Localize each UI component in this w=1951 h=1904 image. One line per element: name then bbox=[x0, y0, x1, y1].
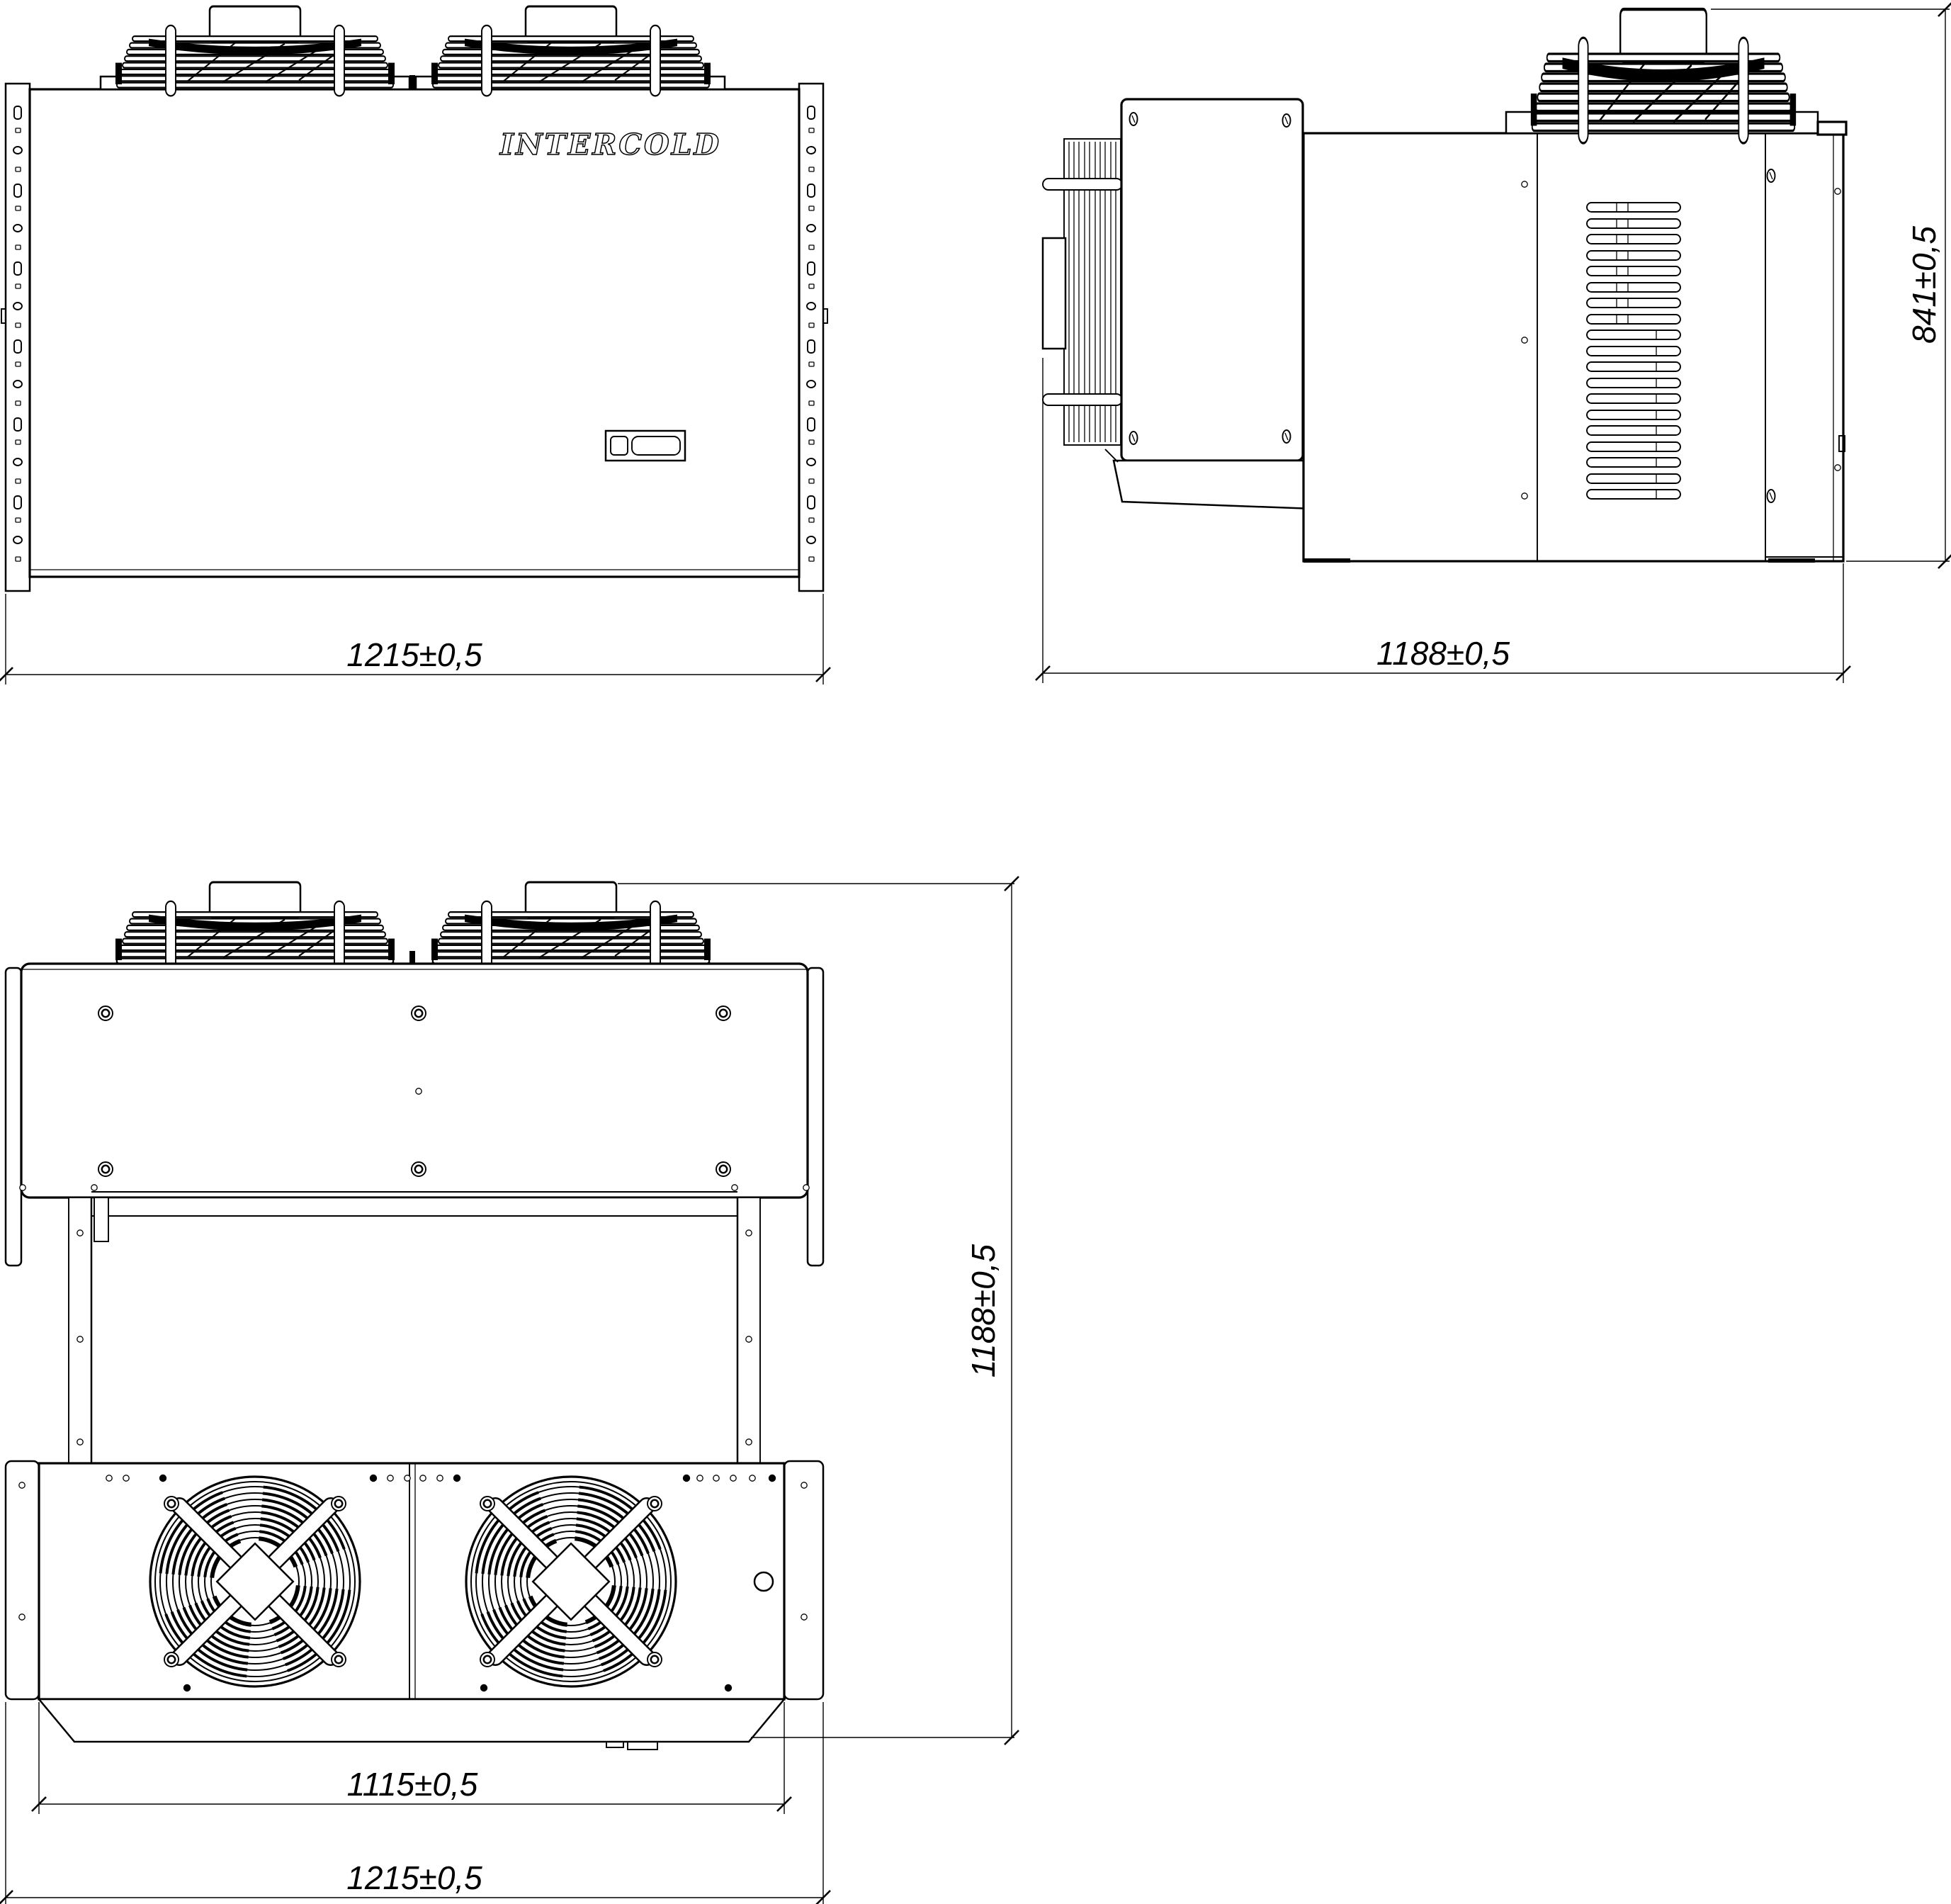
brand-logo: INTERCOLD bbox=[499, 128, 721, 162]
drawing-canvas: INTERCOLD 1215±0,5 bbox=[0, 0, 1951, 1904]
front-width-dimension: 1215±0,5 bbox=[0, 594, 830, 685]
front-view: INTERCOLD 1215±0,5 bbox=[0, 6, 830, 685]
plan-depth-label: 1188±0,5 bbox=[965, 1244, 1002, 1378]
plan-view: 1115±0,5 1215±0,5 1188±0,5 bbox=[0, 877, 1019, 1904]
side-condenser-top bbox=[1531, 9, 1796, 143]
plan-fan-section bbox=[6, 1461, 823, 1750]
side-condenser-coil bbox=[1043, 139, 1122, 445]
plan-bottom-tray bbox=[39, 1699, 784, 1742]
front-width-label: 1215±0,5 bbox=[346, 636, 482, 673]
side-view: 1188±0,5 841±0,5 bbox=[1036, 2, 1951, 683]
fan-1 bbox=[150, 1477, 360, 1686]
plan-condenser-2 bbox=[431, 882, 711, 971]
plan-middle-section bbox=[69, 1198, 760, 1463]
side-depth-label: 1188±0,5 bbox=[1376, 635, 1510, 672]
technical-drawing-sheet: INTERCOLD 1215±0,5 bbox=[0, 0, 1951, 1904]
side-height-label: 841±0,5 bbox=[1906, 226, 1942, 344]
plan-width-label: 1215±0,5 bbox=[346, 1859, 482, 1896]
condenser-unit-1 bbox=[115, 6, 395, 96]
plan-condenser-1 bbox=[115, 882, 395, 971]
fan-2 bbox=[466, 1477, 676, 1686]
plan-inner-width-label: 1115±0,5 bbox=[347, 1766, 478, 1803]
condenser-unit-2 bbox=[431, 6, 711, 96]
side-main-body bbox=[1304, 112, 1846, 563]
side-mounting-panel bbox=[1121, 99, 1303, 461]
